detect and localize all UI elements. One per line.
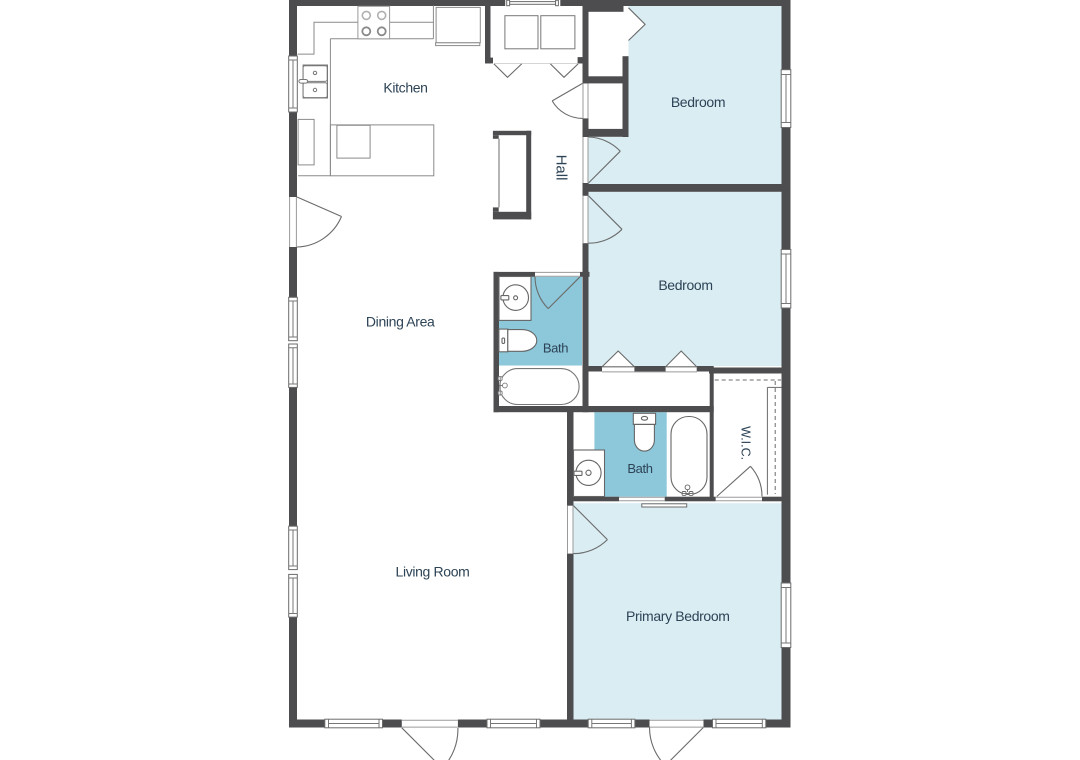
svg-text:Bath: Bath [627, 461, 652, 476]
svg-text:Bath: Bath [543, 341, 568, 356]
svg-text:Bedroom: Bedroom [658, 277, 712, 293]
svg-text:Dining Area: Dining Area [366, 314, 435, 330]
svg-text:Hall: Hall [553, 155, 570, 181]
svg-text:Primary Bedroom: Primary Bedroom [626, 608, 730, 624]
svg-text:Living Room: Living Room [396, 563, 470, 579]
svg-text:Bedroom: Bedroom [671, 94, 725, 110]
svg-text:Kitchen: Kitchen [383, 80, 427, 96]
svg-text:W.I.C.: W.I.C. [738, 426, 752, 460]
